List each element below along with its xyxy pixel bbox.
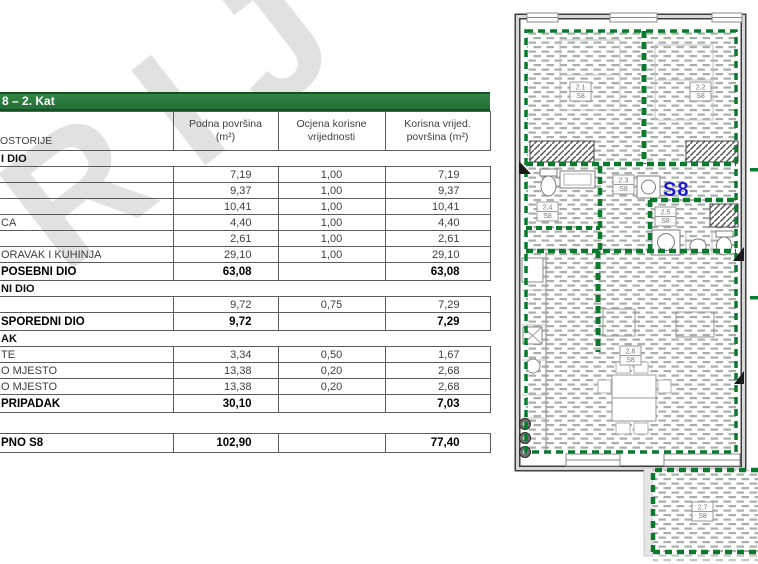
table-cell: 1,00	[278, 215, 385, 231]
header-korisna: Korisna vrijed. površina (m²)	[385, 112, 490, 151]
svg-text:2.1: 2.1	[576, 85, 586, 92]
table-cell: 9,72	[173, 313, 278, 331]
svg-text:2.6: 2.6	[626, 349, 636, 356]
table-cell: 7,03	[385, 395, 490, 413]
table-row: O MJESTO13,380,202,68	[0, 379, 490, 395]
table-cell	[278, 395, 385, 413]
table-cell	[173, 413, 278, 434]
table-cell	[385, 151, 490, 167]
table-cell: 4,40	[173, 215, 278, 231]
table-cell: 1,00	[278, 231, 385, 247]
svg-text:S8: S8	[619, 186, 628, 193]
table-cell: TE	[0, 347, 173, 363]
table-row: PNO S8102,9077,40	[0, 434, 490, 453]
room-label-2-7: 2.7S8	[692, 502, 713, 521]
table-row: AK	[0, 331, 490, 347]
table-row: 10,411,0010,41	[0, 199, 490, 215]
kitchen-sink-icon	[526, 359, 540, 373]
svg-text:S8: S8	[698, 513, 707, 520]
table-cell	[385, 331, 490, 347]
table-row: PRIPADAK30,107,03	[0, 395, 490, 413]
table-cell: 0,20	[278, 379, 385, 395]
table-cell	[278, 413, 385, 434]
table-cell: 2,68	[385, 363, 490, 379]
table-row	[0, 413, 490, 434]
table-cell	[173, 281, 278, 297]
floor-plan: S8 2.1S8 2.2S8 2.3S8 2.4S8 2.5S8 2.6S8 2…	[505, 8, 758, 564]
unit-label: S8	[663, 179, 689, 201]
table-row: 2,611,002,61	[0, 231, 490, 247]
room-label-2-3: 2.3S8	[613, 175, 634, 194]
room-label-2-2: 2.2S8	[690, 82, 711, 101]
header-ocjena: Ocjena korisne vrijednosti	[278, 112, 385, 151]
table-cell: 2,61	[173, 231, 278, 247]
table-cell: 63,08	[173, 263, 278, 281]
table-cell	[385, 281, 490, 297]
table-cell: 10,41	[173, 199, 278, 215]
table-cell: 63,08	[385, 263, 490, 281]
table-cell: 1,00	[278, 183, 385, 199]
table-body: I DIO7,191,007,199,371,009,3710,411,0010…	[0, 151, 490, 453]
table-cell: 3,34	[173, 347, 278, 363]
table-cell: 2,68	[385, 379, 490, 395]
table-cell: 7,19	[173, 167, 278, 183]
window-icon	[610, 13, 657, 22]
svg-text:S8: S8	[661, 218, 670, 225]
table-cell	[173, 331, 278, 347]
table-cell	[0, 231, 173, 247]
table-row: CA4,401,004,40	[0, 215, 490, 231]
table-cell: I DIO	[0, 151, 173, 167]
svg-text:S8: S8	[543, 213, 552, 220]
table-cell	[278, 281, 385, 297]
table-cell	[385, 413, 490, 434]
table-row: ORAVAK I KUHINJA29,101,0029,10	[0, 247, 490, 263]
table-title-bar: 8 – 2. Kat	[0, 92, 490, 111]
table-cell: CA	[0, 215, 173, 231]
table-cell: ORAVAK I KUHINJA	[0, 247, 173, 263]
table-cell: PRIPADAK	[0, 395, 173, 413]
svg-text:S8: S8	[626, 357, 635, 364]
table-row: SPOREDNI DIO9,727,29	[0, 313, 490, 331]
table-cell	[0, 167, 173, 183]
svg-text:2.3: 2.3	[619, 178, 629, 185]
table-cell	[0, 183, 173, 199]
table-cell: 13,38	[173, 379, 278, 395]
table-cell	[173, 151, 278, 167]
room-label-2-5: 2.5S8	[655, 207, 676, 226]
table-cell	[0, 199, 173, 215]
table-cell: 102,90	[173, 434, 278, 453]
table-cell: 10,41	[385, 199, 490, 215]
table-cell: O MJESTO	[0, 379, 173, 395]
table-row: O MJESTO13,380,202,68	[0, 363, 490, 379]
table-cell: 77,40	[385, 434, 490, 453]
table-cell	[278, 263, 385, 281]
table-cell: 1,67	[385, 347, 490, 363]
table-cell: SPOREDNI DIO	[0, 313, 173, 331]
table-cell: 29,10	[173, 247, 278, 263]
table-row: 9,371,009,37	[0, 183, 490, 199]
svg-text:2.2: 2.2	[696, 85, 706, 92]
table-cell: 13,38	[173, 363, 278, 379]
area-table: 8 – 2. Kat OSTORIJE Podna površina (m²) …	[0, 92, 490, 453]
svg-text:S8: S8	[696, 93, 705, 100]
window-icon	[712, 13, 742, 22]
room-label-2-6: 2.6S8	[620, 346, 641, 365]
table-cell: 9,72	[173, 297, 278, 313]
table-cell: 9,37	[173, 183, 278, 199]
washing-machine-icon	[637, 176, 660, 198]
table-cell: NI DIO	[0, 281, 173, 297]
table-cell: AK	[0, 331, 173, 347]
table-cell: 7,29	[385, 313, 490, 331]
table-header-row: OSTORIJE Podna površina (m²) Ocjena kori…	[0, 112, 490, 151]
table-cell: 7,29	[385, 297, 490, 313]
room-label-2-1: 2.1S8	[570, 82, 591, 101]
table-cell: 1,00	[278, 247, 385, 263]
bath-toilet-tank-icon	[716, 231, 733, 237]
header-podna: Podna površina (m²)	[173, 112, 278, 151]
toilet-icon	[541, 176, 556, 196]
table-row: 7,191,007,19	[0, 167, 490, 183]
table-cell	[0, 413, 173, 434]
svg-text:2.7: 2.7	[698, 505, 708, 512]
table-cell: 2,61	[385, 231, 490, 247]
neighbor-unit-marks	[750, 168, 758, 300]
window-icon	[527, 13, 558, 22]
table-cell: 29,10	[385, 247, 490, 263]
table-cell	[278, 151, 385, 167]
table-cell: 9,37	[385, 183, 490, 199]
table-cell	[0, 297, 173, 313]
table-cell: 1,00	[278, 199, 385, 215]
table-cell: PNO S8	[0, 434, 173, 453]
table-cell	[278, 434, 385, 453]
table-row: POSEBNI DIO63,0863,08	[0, 263, 490, 281]
header-rooms: OSTORIJE	[0, 112, 173, 151]
table-cell: 7,19	[385, 167, 490, 183]
table-cell: 0,75	[278, 297, 385, 313]
table-cell	[278, 331, 385, 347]
table-cell: POSEBNI DIO	[0, 263, 173, 281]
table-cell: 30,10	[173, 395, 278, 413]
room-label-2-4: 2.4S8	[537, 202, 558, 221]
window-icon	[566, 454, 620, 466]
table-cell	[278, 313, 385, 331]
table-cell: 0,20	[278, 363, 385, 379]
table-row: 9,720,757,29	[0, 297, 490, 313]
table-cell: 0,50	[278, 347, 385, 363]
area-table-grid: OSTORIJE Podna površina (m²) Ocjena kori…	[0, 111, 491, 453]
table-row: TE3,340,501,67	[0, 347, 490, 363]
table-cell: 1,00	[278, 167, 385, 183]
window-icon	[664, 454, 740, 466]
table-row: NI DIO	[0, 281, 490, 297]
svg-text:2.5: 2.5	[661, 210, 671, 217]
table-cell: 4,40	[385, 215, 490, 231]
table-cell: O MJESTO	[0, 363, 173, 379]
svg-text:2.4: 2.4	[543, 205, 553, 212]
table-row: I DIO	[0, 151, 490, 167]
svg-text:S8: S8	[576, 93, 585, 100]
toilet-tank-icon	[540, 169, 557, 176]
